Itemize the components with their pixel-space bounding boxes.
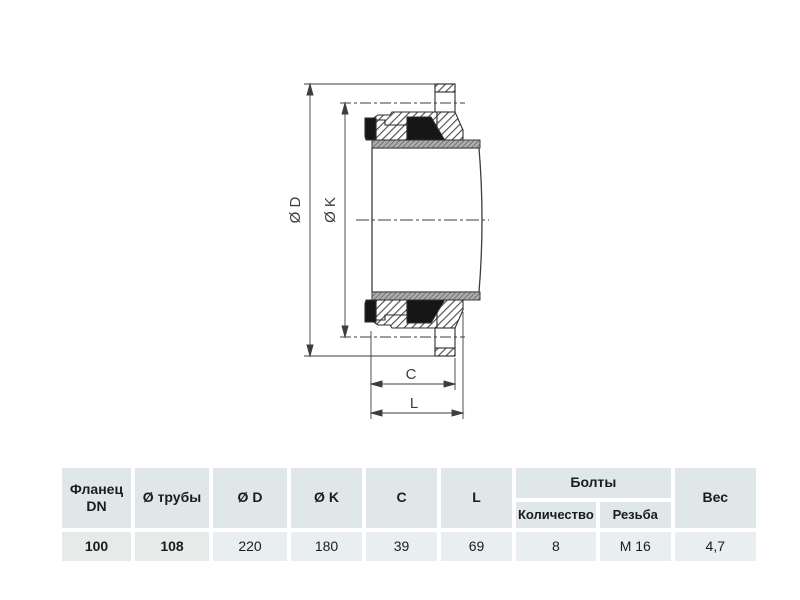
page: Ø D Ø K C L (0, 0, 800, 600)
pipe-break-line (479, 148, 482, 292)
coupling-bottom (365, 300, 463, 356)
header-dia-d: Ø D (213, 468, 287, 528)
data-row: 100 108 220 180 39 69 8 М 16 4,7 (62, 532, 756, 561)
cell-bolts-thread: М 16 (600, 532, 671, 561)
header-flange-dn: Фланец DN (62, 468, 131, 528)
dim-d: Ø D (287, 84, 313, 356)
header-row-1: Фланец DN Ø трубы Ø D Ø K C L Болты Вес (62, 468, 756, 498)
header-pipe-dia: Ø трубы (135, 468, 209, 528)
dim-k-label: Ø K (322, 197, 339, 223)
dim-d-label: Ø D (287, 197, 304, 224)
grip-ring-top (372, 140, 480, 148)
dim-c-label: C (406, 366, 417, 383)
header-l: L (441, 468, 512, 528)
cell-dia-d: 220 (213, 532, 287, 561)
header-bolts-group: Болты (516, 468, 671, 498)
dim-c: C (371, 366, 455, 387)
cell-bolts-qty: 8 (516, 532, 596, 561)
cell-c: 39 (366, 532, 437, 561)
cell-flange-dn: 100 (62, 532, 131, 561)
dim-l-label: L (410, 395, 418, 412)
flange-bolt-boss-cap (435, 84, 455, 92)
cell-pipe-dia: 108 (135, 532, 209, 561)
seal-retainer (365, 118, 376, 140)
cell-dia-k: 180 (291, 532, 362, 561)
dim-k: Ø K (322, 103, 348, 337)
cell-weight: 4,7 (675, 532, 756, 561)
header-bolts-qty: Количество (516, 502, 596, 528)
header-c: C (366, 468, 437, 528)
seal-retainer (365, 300, 376, 322)
grip-ring-bottom (372, 292, 480, 300)
flange-bolt-boss-cap (435, 348, 455, 356)
header-weight: Вес (675, 468, 756, 528)
header-bolts-thread: Резьба (600, 502, 671, 528)
spec-table: Фланец DN Ø трубы Ø D Ø K C L Болты Вес … (58, 464, 760, 565)
header-dia-k: Ø K (291, 468, 362, 528)
dim-l: L (371, 395, 463, 416)
cell-l: 69 (441, 532, 512, 561)
coupling-top (365, 84, 463, 140)
technical-drawing: Ø D Ø K C L (0, 0, 800, 458)
